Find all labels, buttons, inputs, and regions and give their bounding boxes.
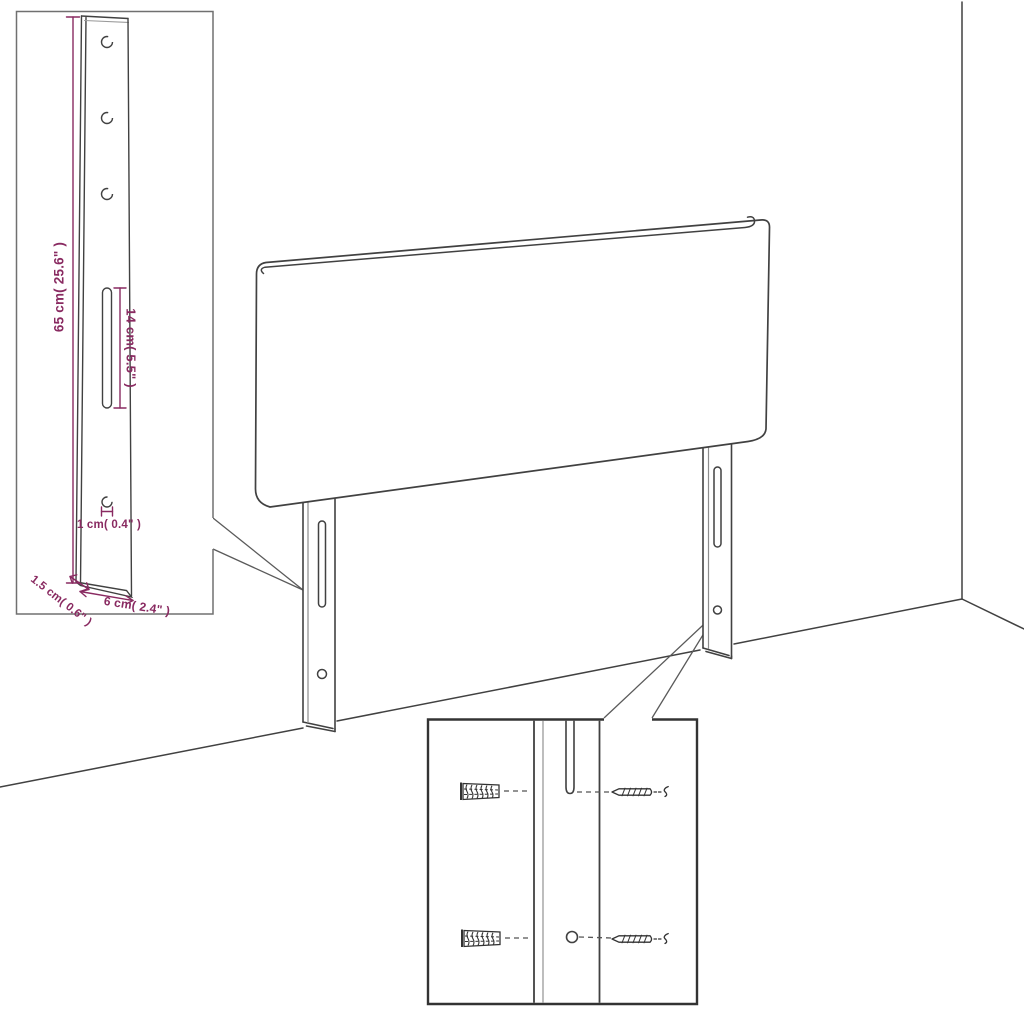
floor-line-left-b: [337, 650, 700, 721]
floor-line-left-c: [734, 599, 962, 644]
dimension-label-slot-length: 14 cm( 5.5" ): [124, 308, 139, 388]
mounting-detail-inset: [428, 720, 697, 1005]
dimension-label-leg-height: 65 cm( 25.6" ): [52, 242, 67, 332]
dimension-label-hole-diameter: 1 cm( 0.4" ): [77, 519, 141, 531]
right-leg-hole: [714, 606, 722, 614]
left-leg-hole: [318, 670, 327, 679]
headboard-left-leg: [303, 488, 335, 732]
floor-line-right: [962, 599, 1024, 629]
headboard-panel: [256, 217, 770, 507]
headboard-right-leg: [703, 436, 732, 659]
callout-lines-to-leg-inset: [213, 518, 303, 590]
leg-detail-slot: [103, 288, 112, 408]
product-dimension-diagram: 65 cm( 25.6" ) 14 cm( 5.5" ) 1 cm( 0.4" …: [0, 0, 1024, 1024]
diagram-lineart: [0, 0, 1024, 1024]
left-leg-slot: [319, 521, 326, 607]
right-leg-slot: [714, 467, 721, 547]
floor-line-left-a: [0, 728, 303, 787]
